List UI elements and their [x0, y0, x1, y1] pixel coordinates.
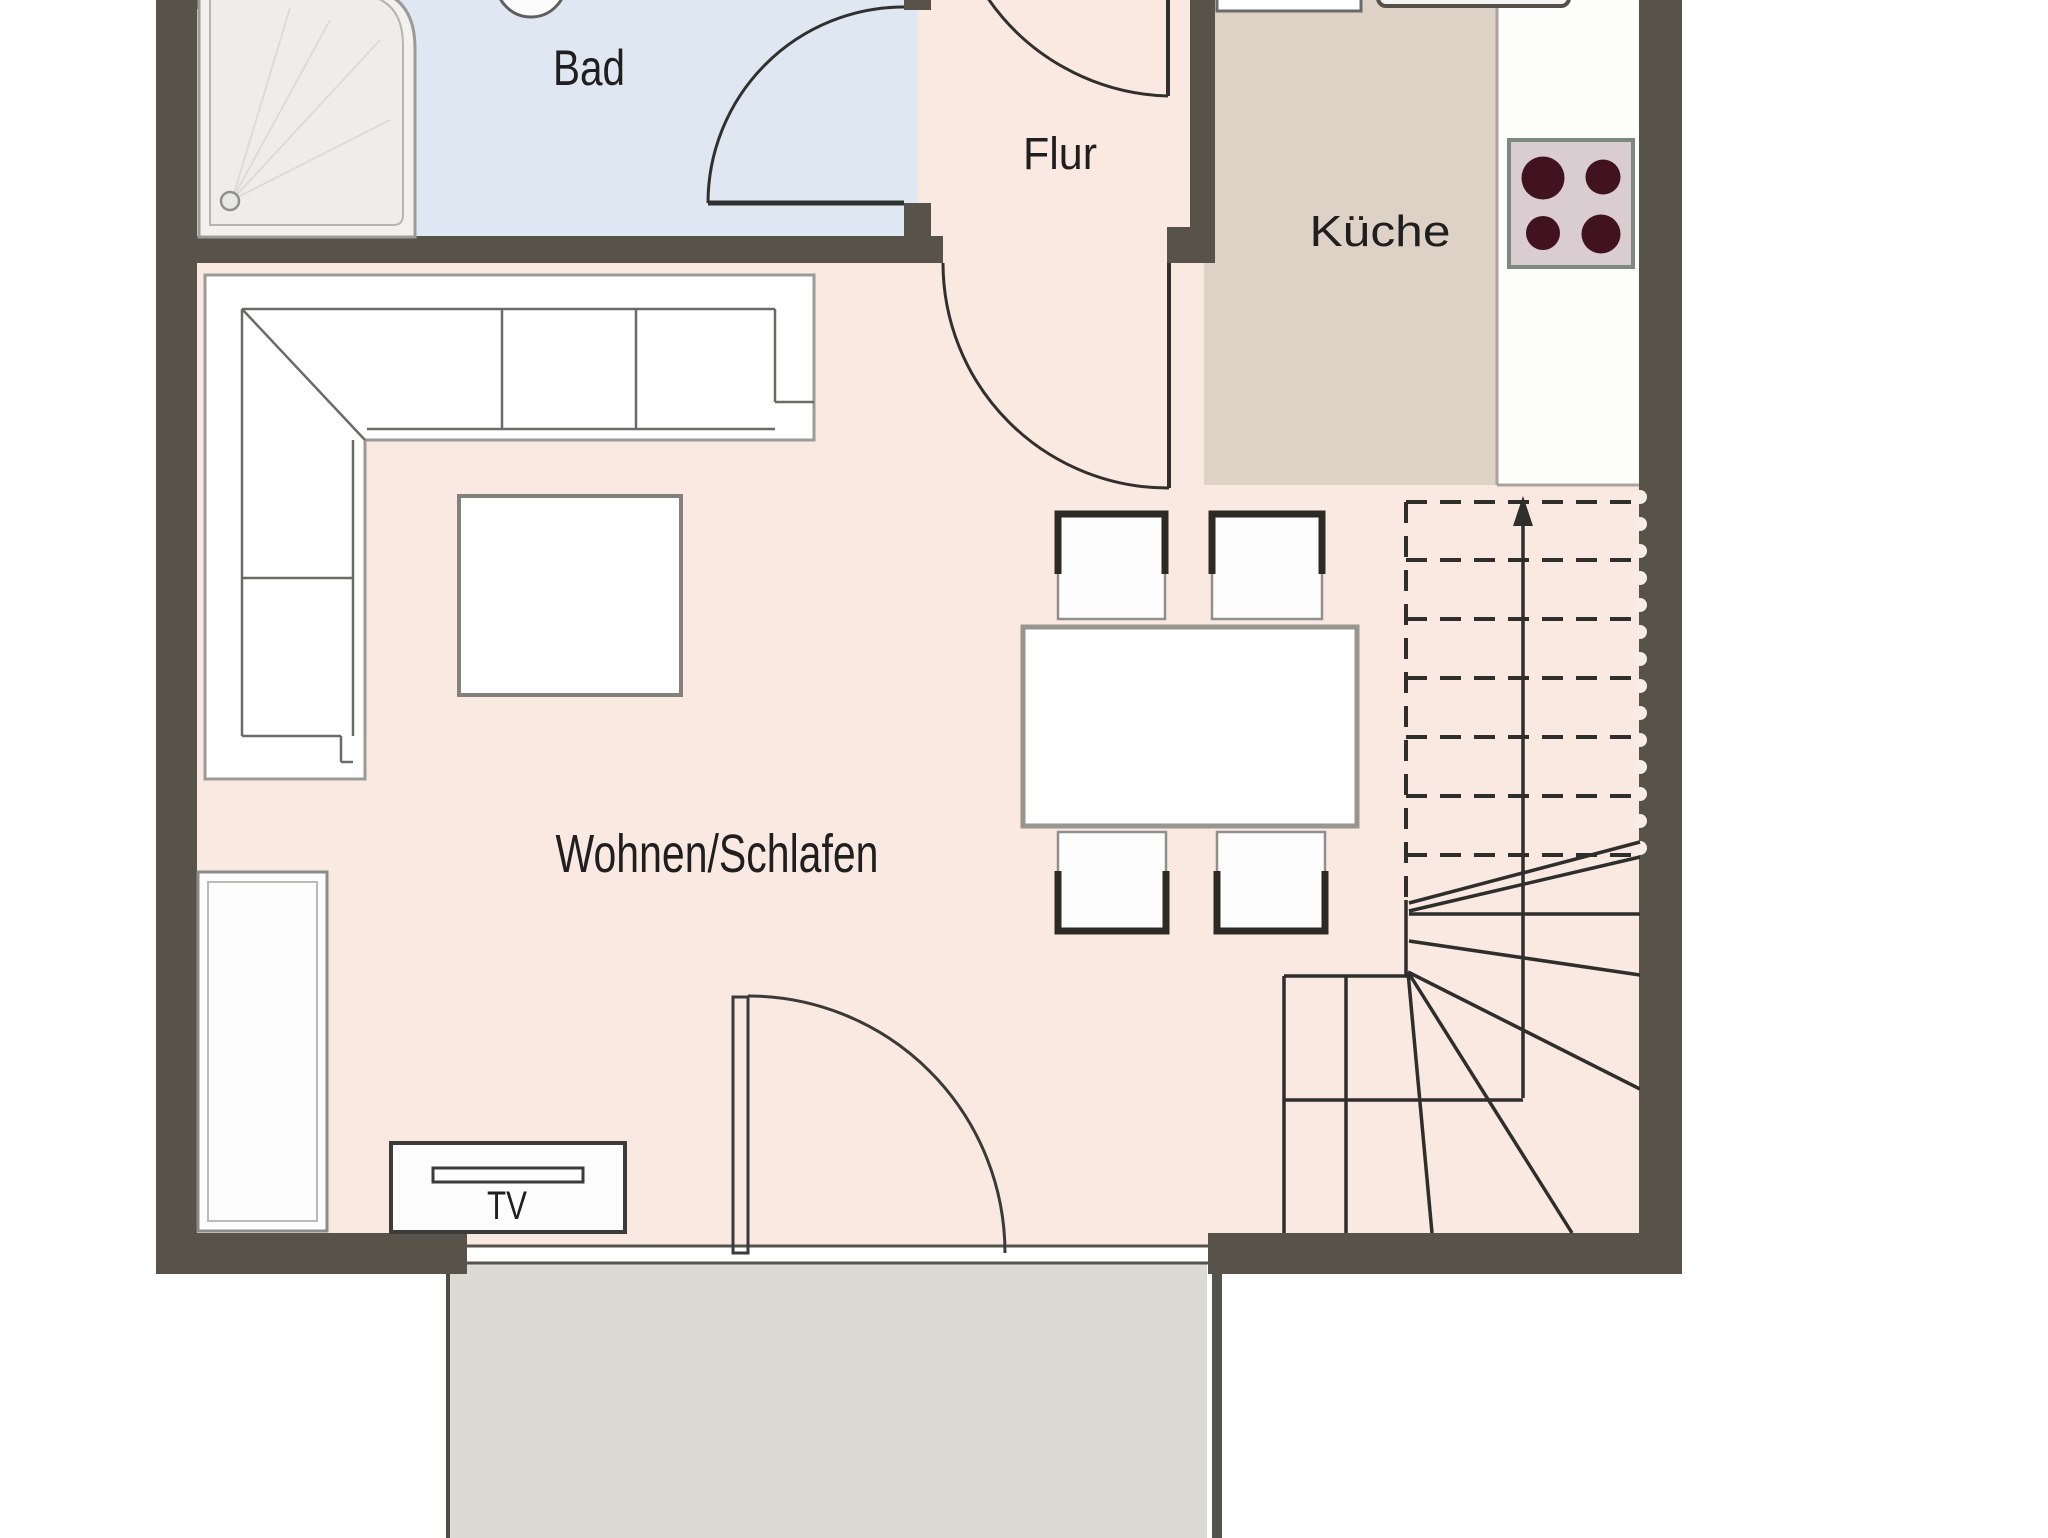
svg-text:Bad: Bad: [553, 40, 625, 96]
svg-text:Küche: Küche: [1310, 207, 1451, 256]
svg-text:Wohnen/Schlafen: Wohnen/Schlafen: [556, 824, 879, 884]
svg-text:Flur: Flur: [1023, 128, 1097, 179]
svg-text:TV: TV: [487, 1184, 527, 1228]
